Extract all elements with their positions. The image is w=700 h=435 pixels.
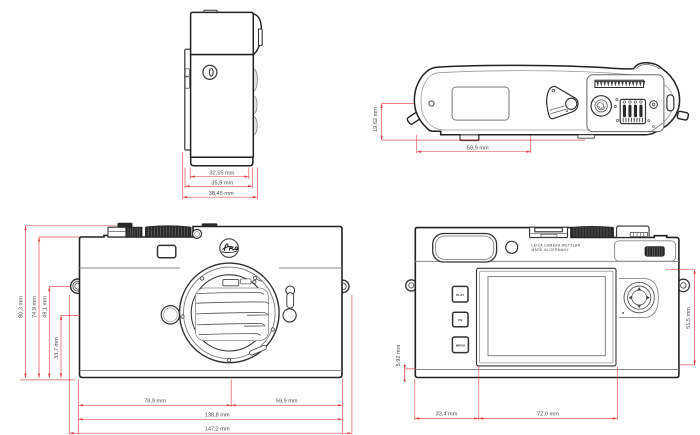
svg-text:MADE IN GERMANY: MADE IN GERMANY <box>532 248 570 252</box>
svg-text:59,9 mm: 59,9 mm <box>276 399 298 405</box>
svg-text:19,62 mm: 19,62 mm <box>373 107 379 132</box>
svg-text:PLAY: PLAY <box>456 293 465 297</box>
svg-text:80,3 mm: 80,3 mm <box>18 296 24 318</box>
svg-text:74,9 mm: 74,9 mm <box>32 296 38 318</box>
svg-text:147,2 mm: 147,2 mm <box>205 426 230 432</box>
svg-text:32,55 mm: 32,55 mm <box>209 171 234 177</box>
svg-text:78,9 mm: 78,9 mm <box>144 399 166 405</box>
svg-text:35,9 mm: 35,9 mm <box>211 180 233 186</box>
svg-text:49,1 mm: 49,1 mm <box>42 296 48 318</box>
svg-text:59,9 mm: 59,9 mm <box>467 146 489 152</box>
svg-text:33,4 mm: 33,4 mm <box>436 412 458 418</box>
svg-text:5,92 mm: 5,92 mm <box>396 344 402 366</box>
svg-text:33,7 mm: 33,7 mm <box>54 337 60 359</box>
svg-text:138,8 mm: 138,8 mm <box>205 412 230 418</box>
svg-text:51,5 mm: 51,5 mm <box>686 307 692 329</box>
svg-text:38,45 mm: 38,45 mm <box>209 191 234 197</box>
svg-text:MENU: MENU <box>456 343 466 347</box>
svg-text:LEICA CAMERA WETZLAR: LEICA CAMERA WETZLAR <box>532 243 581 247</box>
svg-text:72,0 mm: 72,0 mm <box>537 412 559 418</box>
